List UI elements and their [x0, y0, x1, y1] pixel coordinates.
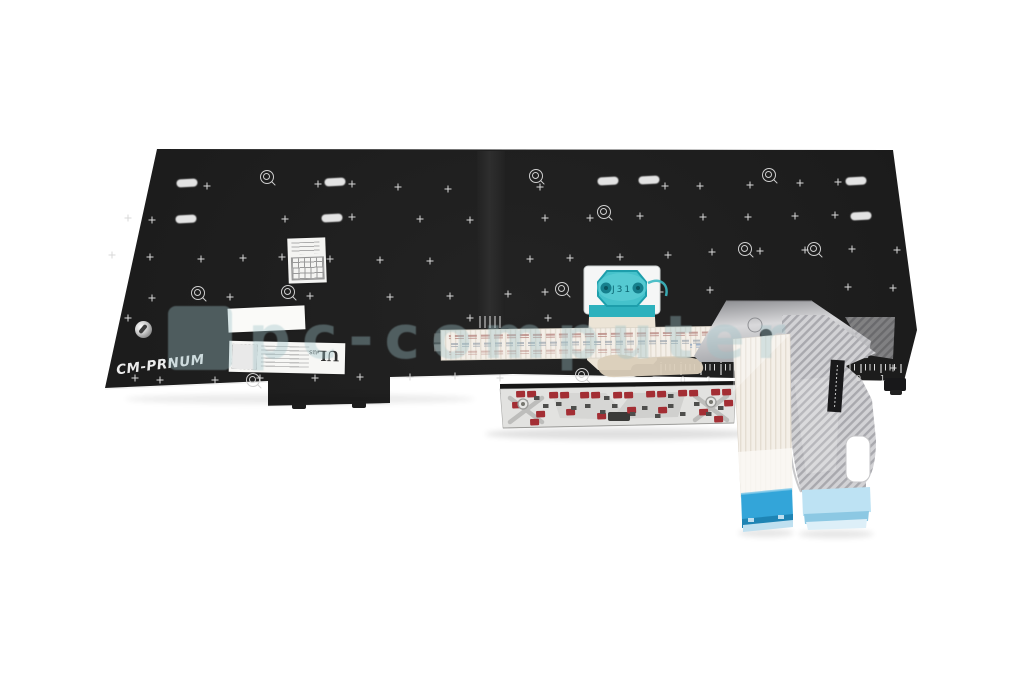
rubber-dome-pad: [536, 411, 545, 418]
mechanism-clip: [642, 406, 648, 410]
rubber-dome-pad: [549, 392, 558, 399]
rubber-dome-pad: [580, 392, 589, 399]
rubber-dome-pad: [591, 392, 600, 399]
mechanism-clip: [718, 406, 724, 410]
rubber-dome-pad: [657, 391, 666, 398]
spring-ring-center: [709, 400, 713, 404]
product-photo: ULus CM-PRNUM: [0, 0, 1024, 680]
mechanism-clip: [571, 406, 577, 410]
rubber-dome-pad: [724, 400, 733, 407]
ruler-number: 0: [856, 374, 861, 383]
rubber-dome-pad: [722, 389, 731, 396]
rubber-dome-pad: [516, 391, 525, 398]
cable-window: [846, 436, 870, 482]
trackpoint-marking: J31: [611, 285, 632, 295]
rubber-dome-pad: [658, 407, 667, 414]
rubber-dome-pad: [689, 390, 698, 397]
mechanism-clip: [534, 396, 540, 400]
mechanism-clip: [612, 404, 618, 408]
rubber-dome-pad: [646, 391, 655, 398]
watermark-logo: [168, 306, 232, 370]
mechanism-clip: [630, 412, 636, 416]
rubber-dome-pad: [678, 390, 687, 397]
rubber-dome-pad: [530, 419, 539, 426]
rubber-dome-pad: [624, 392, 633, 399]
spring-ring-center: [521, 402, 525, 406]
mechanism-clip: [543, 404, 549, 408]
mechanism-clip: [680, 412, 686, 416]
mechanism-clip: [668, 404, 674, 408]
mechanism-clip: [668, 394, 674, 398]
mechanism-clip: [556, 402, 562, 406]
rubber-dome-pad: [711, 389, 720, 396]
rubber-dome-pad: [560, 392, 569, 399]
mechanism-clip: [655, 414, 661, 418]
mechanism-clip: [694, 402, 700, 406]
rubber-dome-pad: [613, 392, 622, 399]
keyboard-mechanism-strip: [500, 381, 736, 428]
mechanism-clip: [604, 396, 610, 400]
mechanism-clip: [585, 404, 591, 408]
mechanism-clip: [600, 410, 606, 414]
ruler-number: 1: [880, 374, 885, 383]
rubber-dome-pad: [714, 416, 723, 423]
watermark-text: pc-computer: [248, 303, 796, 373]
mechanism-clip: [706, 412, 712, 416]
